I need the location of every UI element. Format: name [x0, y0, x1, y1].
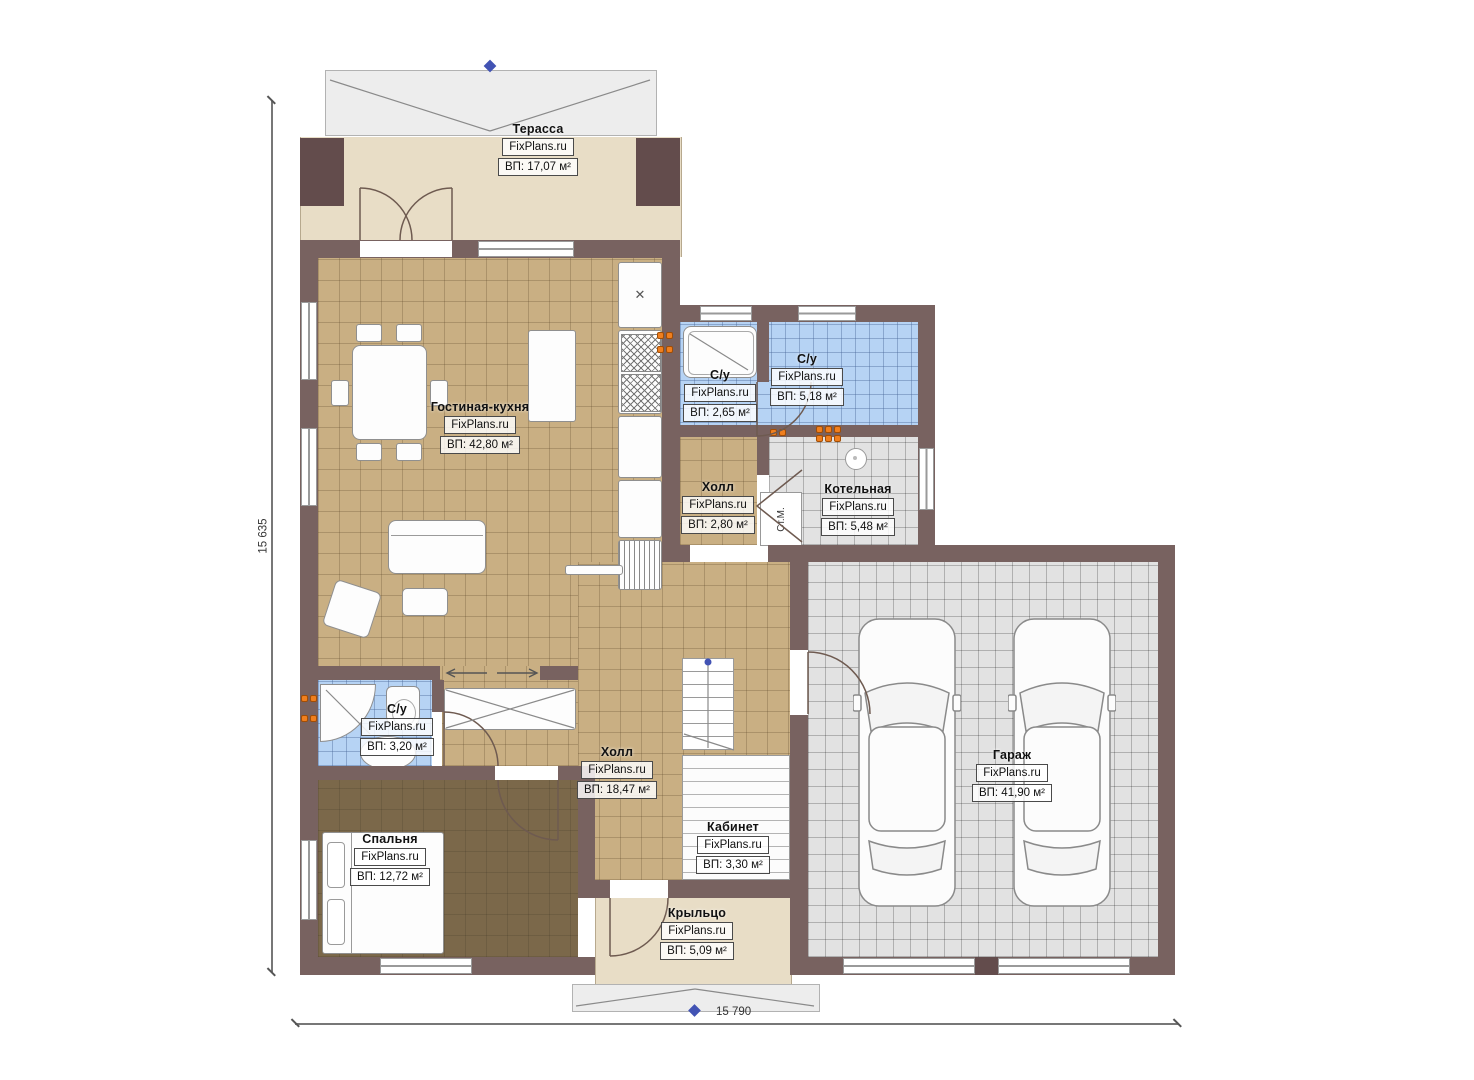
room-name: Кабинет [684, 820, 782, 834]
room-label-terrace: Терасса FixPlans.ru ВП: 17,07 м² [468, 122, 608, 176]
garage-door-opening-2 [998, 958, 1130, 974]
brand-label: FixPlans.ru [354, 848, 426, 866]
room-label-wc-master: С/у FixPlans.ru ВП: 3,20 м² [352, 702, 442, 756]
room-label-garage: Гараж FixPlans.ru ВП: 41,90 м² [962, 748, 1062, 802]
dining-chair-5 [331, 380, 349, 406]
dining-chair-1 [356, 324, 382, 342]
brand-label: FixPlans.ru [976, 764, 1048, 782]
window-living-top [478, 241, 574, 257]
room-name: С/у [352, 702, 442, 716]
room-label-hall-main: Холл FixPlans.ru ВП: 18,47 м² [570, 745, 664, 799]
room-label-bedroom: Спальня FixPlans.ru ВП: 12,72 м² [338, 832, 442, 886]
room-label-boiler: Котельная FixPlans.ru ВП: 5,48 м² [806, 482, 910, 536]
wall-garage-bottom-post [975, 957, 998, 975]
wall-wc-hall-horizontal [680, 425, 918, 437]
kitchen-counter-mid [618, 416, 662, 478]
wardrobe-icon [444, 688, 576, 730]
wall-bedroom-top-a [318, 766, 495, 780]
pillow-2 [327, 899, 345, 945]
room-label-living: Гостиная-кухня FixPlans.ru ВП: 42,80 м² [405, 400, 555, 454]
room-area: ВП: 2,65 м² [683, 404, 757, 422]
room-name: С/у [678, 368, 762, 382]
window-wc-large-top [798, 306, 856, 321]
terrace-post-right [636, 138, 680, 206]
window-bedroom-bottom [380, 958, 472, 974]
dimension-label-left: 15 635 [258, 518, 270, 553]
brand-label: FixPlans.ru [502, 138, 574, 156]
terrace-post-left [300, 138, 344, 206]
dimension-label-bottom: 15 790 [716, 1006, 751, 1018]
garage-door-opening-1 [843, 958, 975, 974]
wall-garage-right [1158, 545, 1175, 975]
dishwasher-icon [618, 540, 662, 590]
floor-plan-canvas: ✕ Ст.М. [0, 0, 1474, 1080]
radiator-wc-master-2 [301, 715, 317, 722]
room-area: ВП: 3,20 м² [360, 738, 434, 756]
wall-upper-block-right [918, 305, 935, 562]
wall-hall-boiler-divider [757, 437, 769, 475]
room-area: ВП: 5,48 м² [821, 518, 895, 536]
room-area: ВП: 3,30 м² [696, 856, 770, 874]
room-name: Котельная [806, 482, 910, 496]
brand-label: FixPlans.ru [771, 368, 843, 386]
room-area: ВП: 18,47 м² [577, 781, 657, 799]
brand-label: FixPlans.ru [581, 761, 653, 779]
washing-machine-icon: Ст.М. [760, 492, 802, 546]
sofa-icon [388, 520, 486, 574]
window-bedroom-left [301, 840, 317, 920]
wall-mid-horizontal-b [768, 545, 1175, 562]
stove-burners-2 [621, 374, 661, 412]
fridge-icon [618, 480, 662, 538]
room-label-wc-large: С/у FixPlans.ru ВП: 5,18 м² [762, 352, 852, 406]
washing-machine-label: Ст.М. [776, 507, 787, 532]
room-name: Гараж [962, 748, 1062, 762]
wall-garage-left-a [790, 562, 808, 650]
room-label-office: Кабинет FixPlans.ru ВП: 3,30 м² [684, 820, 782, 874]
radiator-wc-master-1 [301, 695, 317, 702]
terrace-door-opening [360, 241, 452, 257]
dining-chair-3 [356, 443, 382, 461]
window-living-left-2 [301, 428, 317, 506]
room-label-porch: Крыльцо FixPlans.ru ВП: 5,09 м² [648, 906, 746, 960]
porch-entry-opening [610, 881, 668, 897]
tv-stand [565, 565, 623, 575]
brand-label: FixPlans.ru [682, 496, 754, 514]
brand-label: FixPlans.ru [697, 836, 769, 854]
room-name: Терасса [468, 122, 608, 136]
room-name: Гостиная-кухня [405, 400, 555, 414]
room-label-hall-small: Холл FixPlans.ru ВП: 2,80 м² [676, 480, 760, 534]
porch-roof-outline [572, 984, 820, 1012]
coffee-table [402, 588, 448, 616]
room-area: ВП: 42,80 м² [440, 436, 520, 454]
radiator-kitchen-1 [657, 332, 673, 339]
boiler-unit-icon [845, 448, 867, 470]
room-area: ВП: 41,90 м² [972, 784, 1052, 802]
window-boiler-right [919, 448, 934, 510]
wall-porch-top-a [595, 880, 610, 898]
dining-chair-2 [396, 324, 422, 342]
staircase-upper-flight [682, 658, 734, 750]
room-name: С/у [762, 352, 852, 366]
stove-icon [618, 330, 662, 414]
brand-label: FixPlans.ru [444, 416, 516, 434]
room-area: ВП: 17,07 м² [498, 158, 578, 176]
radiator-boiler-small [770, 429, 786, 436]
brand-label: FixPlans.ru [822, 498, 894, 516]
room-name: Холл [570, 745, 664, 759]
wall-garage-left-b [790, 715, 808, 957]
brand-label: FixPlans.ru [361, 718, 433, 736]
sofa-back-line [391, 523, 483, 536]
car-icon-1 [853, 615, 961, 910]
window-living-left-1 [301, 302, 317, 380]
room-area: ВП: 12,72 м² [350, 868, 430, 886]
room-label-wc-small: С/у FixPlans.ru ВП: 2,65 м² [678, 368, 762, 422]
wall-living-corridor-b [540, 666, 578, 680]
brand-label: FixPlans.ru [661, 922, 733, 940]
room-area: ВП: 5,09 м² [660, 942, 734, 960]
window-wc-small-top [700, 306, 752, 321]
wall-mid-horizontal-a [662, 545, 690, 562]
room-name: Холл [676, 480, 760, 494]
room-area: ВП: 5,18 м² [770, 388, 844, 406]
radiator-kitchen-2 [657, 346, 673, 353]
dimension-line-left [271, 100, 273, 972]
wall-living-corridor-a [318, 666, 440, 680]
room-area: ВП: 2,80 м² [681, 516, 755, 534]
radiator-boiler-large [816, 426, 841, 442]
kitchen-counter-top: ✕ [618, 262, 662, 328]
room-name: Спальня [338, 832, 442, 846]
dimension-line-bottom [295, 1023, 1178, 1025]
brand-label: FixPlans.ru [684, 384, 756, 402]
room-name: Крыльцо [648, 906, 746, 920]
stove-burners-1 [621, 334, 661, 372]
wall-porch-top-b [668, 880, 808, 898]
